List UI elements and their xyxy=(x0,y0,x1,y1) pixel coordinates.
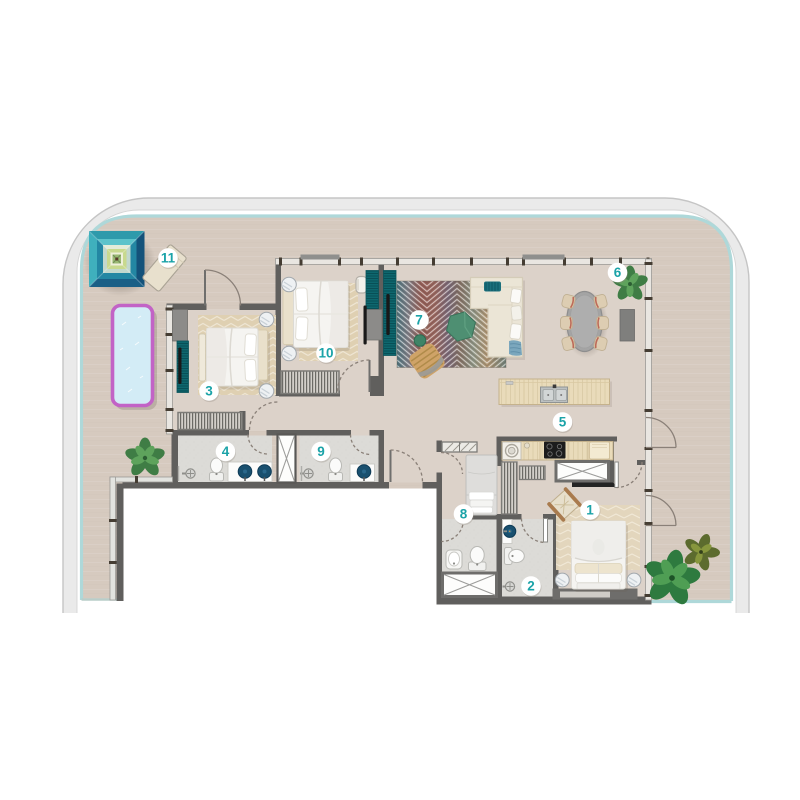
svg-text:1: 1 xyxy=(586,503,594,518)
svg-text:5: 5 xyxy=(559,415,567,430)
svg-text:10: 10 xyxy=(318,346,333,361)
svg-text:11: 11 xyxy=(161,251,176,266)
svg-text:7: 7 xyxy=(415,313,423,328)
svg-text:9: 9 xyxy=(317,444,325,459)
svg-text:6: 6 xyxy=(614,265,622,280)
svg-text:4: 4 xyxy=(222,444,230,459)
svg-text:8: 8 xyxy=(460,507,468,522)
svg-text:2: 2 xyxy=(527,579,535,594)
svg-text:3: 3 xyxy=(205,384,213,399)
